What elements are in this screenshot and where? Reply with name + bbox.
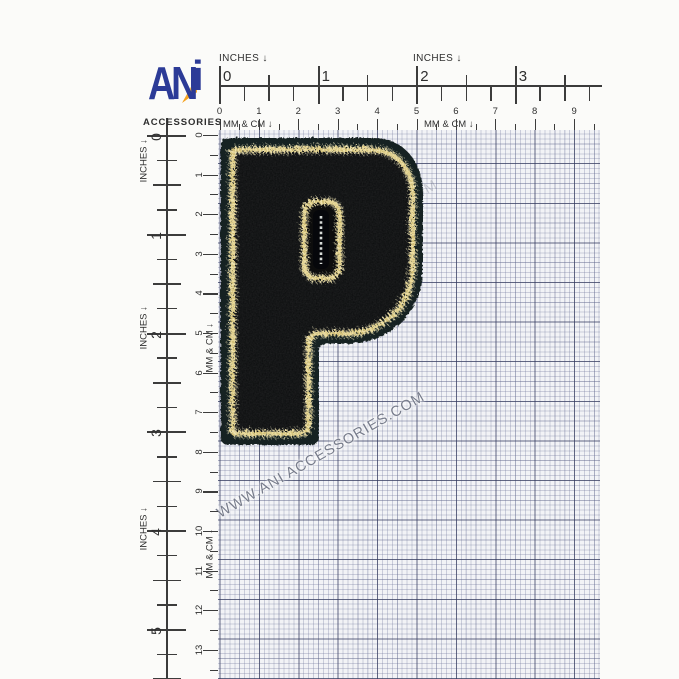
top-ruler-cm-tick: [377, 119, 378, 130]
left-ruler-tick: [157, 506, 177, 508]
top-ruler-tick: [416, 66, 418, 104]
left-ruler-tick: [157, 456, 177, 458]
left-ruler-tick: [157, 555, 177, 557]
left-ruler-cm-number: 6: [195, 364, 207, 382]
left-ruler-cm-number: 8: [195, 443, 207, 461]
top-ruler-tick: [392, 85, 394, 101]
left-ruler-cm-tick: [210, 392, 218, 393]
left-ruler-inch-number: 4: [149, 522, 163, 542]
top-ruler-cm-tick: [495, 119, 496, 130]
top-ruler-cm-number: 8: [528, 107, 542, 117]
left-ruler-cm-tick: [210, 234, 218, 235]
top-ruler-cm-number: 3: [331, 107, 345, 117]
top-ruler-cm-tick: [515, 124, 516, 130]
top-ruler-line: [219, 85, 602, 87]
left-ruler-cm-tick: [210, 155, 218, 156]
left-ruler-cm-number: 9: [195, 482, 207, 500]
top-ruler-cm-tick: [318, 124, 319, 130]
top-ruler-cm-number: 7: [488, 107, 502, 117]
left-ruler-cm-tick: [210, 472, 218, 473]
left-ruler-tick: [157, 604, 177, 606]
top-ruler-cm-number: 5: [410, 107, 424, 117]
left-ruler-cm-number: 10: [195, 522, 207, 540]
top-ruler-inch-number: 3: [519, 69, 527, 84]
top-ruler-cm-tick: [417, 119, 418, 130]
left-ruler-tick: [157, 259, 177, 261]
top-ruler-tick: [318, 66, 320, 104]
left-ruler-cm-number: 5: [195, 324, 207, 342]
left-inches-label-1: INCHES ↓: [139, 133, 149, 189]
left-ruler-tick: [153, 580, 181, 582]
left-ruler-cm-number: 4: [195, 284, 207, 302]
left-ruler-tick: [153, 283, 181, 285]
left-ruler-cm-number: 7: [195, 403, 207, 421]
top-ruler-tick: [539, 85, 541, 101]
top-ruler-cm-tick: [239, 124, 240, 130]
left-ruler-cm-number: 13: [195, 641, 207, 659]
left-inches-label-2: INCHES ↓: [139, 300, 149, 356]
top-ruler-cm-number: 2: [291, 107, 305, 117]
brand-logo: AN i ACCESSORIES: [148, 58, 224, 128]
left-ruler-cm-tick: [210, 511, 218, 512]
left-ruler-line: [166, 118, 168, 679]
left-ruler-cm-number: 3: [195, 245, 207, 263]
top-ruler-cm-tick: [574, 119, 575, 130]
left-ruler-tick: [157, 160, 177, 162]
top-ruler-cm-tick: [456, 119, 457, 130]
left-ruler-cm-number: 12: [195, 601, 207, 619]
top-ruler-cm-tick: [554, 124, 555, 130]
logo-text-i: i: [192, 55, 204, 97]
top-ruler-cm-tick: [397, 124, 398, 130]
left-ruler-inch-number: 0: [149, 127, 163, 147]
left-ruler-tick: [153, 184, 181, 186]
top-ruler-cm-number: 6: [449, 107, 463, 117]
top-ruler-cm-tick: [338, 119, 339, 130]
top-ruler-tick: [268, 75, 270, 101]
logo-text-an: AN: [148, 60, 194, 106]
top-ruler-tick: [441, 85, 443, 101]
left-ruler-tick: [153, 382, 181, 384]
top-ruler-tick: [367, 75, 369, 101]
left-ruler-cm-number: 0: [195, 126, 207, 144]
left-ruler-tick: [153, 481, 181, 483]
left-ruler-inch-number: 1: [149, 226, 163, 246]
top-ruler-tick: [293, 85, 295, 101]
left-ruler-cm-tick: [210, 630, 218, 631]
top-mmcm-label-2: MM & CM ↓: [424, 120, 474, 130]
top-ruler-cm-tick: [298, 119, 299, 130]
top-mmcm-label-1: MM & CM ↓: [223, 120, 273, 130]
product-photo: WWW.ANI ACCESSORIES.COM: [0, 0, 679, 679]
left-ruler-cm-number: 1: [195, 166, 207, 184]
left-ruler-cm-tick: [210, 432, 218, 433]
top-ruler-inch-number: 2: [420, 69, 428, 84]
left-ruler-cm-tick: [210, 670, 218, 671]
top-ruler-inch-number: 1: [322, 69, 330, 84]
top-inches-label-2: INCHES ↓: [413, 54, 462, 64]
left-ruler-tick: [157, 209, 177, 211]
left-ruler-cm-tick: [210, 313, 218, 314]
top-ruler-cm-number: 9: [567, 107, 581, 117]
left-ruler-cm-number: 11: [195, 562, 207, 580]
top-ruler-cm-number: 4: [370, 107, 384, 117]
left-ruler-tick: [157, 654, 177, 656]
top-ruler-tick: [564, 75, 566, 101]
left-ruler-cm-tick: [210, 590, 218, 591]
logo-subtitle: ACCESSORIES: [143, 117, 229, 128]
left-ruler-tick: [157, 407, 177, 409]
top-ruler-cm-tick: [476, 124, 477, 130]
top-ruler-tick: [244, 85, 246, 101]
top-ruler-cm-number: 1: [252, 107, 266, 117]
left-ruler-cm-number: 2: [195, 205, 207, 223]
top-ruler-cm-tick: [259, 119, 260, 130]
left-ruler-cm-tick: [210, 353, 218, 354]
top-ruler-tick: [515, 66, 517, 104]
left-ruler-cm-tick: [210, 274, 218, 275]
top-ruler-tick: [490, 85, 492, 101]
patch-chenille-texture: [231, 148, 411, 432]
left-ruler-tick: [157, 308, 177, 310]
left-ruler-inch-number: 3: [149, 423, 163, 443]
top-ruler-cm-tick: [535, 119, 536, 130]
top-ruler-inch-number: 0: [223, 69, 231, 84]
left-ruler-inch-number: 5: [149, 621, 163, 641]
top-ruler-cm-tick: [594, 124, 595, 130]
left-ruler-cm-tick: [210, 551, 218, 552]
top-ruler-cm-tick: [279, 124, 280, 130]
top-ruler-cm-tick: [357, 124, 358, 130]
letter-p-patch: [195, 122, 445, 477]
top-ruler-tick: [466, 75, 468, 101]
top-ruler-cm-tick: [436, 124, 437, 130]
top-ruler-tick: [589, 85, 591, 101]
top-ruler-tick: [342, 85, 344, 101]
left-ruler-inch-number: 2: [149, 325, 163, 345]
left-ruler-tick: [157, 357, 177, 359]
left-ruler-cm-tick: [210, 194, 218, 195]
top-inches-label-1: INCHES ↓: [219, 54, 268, 64]
